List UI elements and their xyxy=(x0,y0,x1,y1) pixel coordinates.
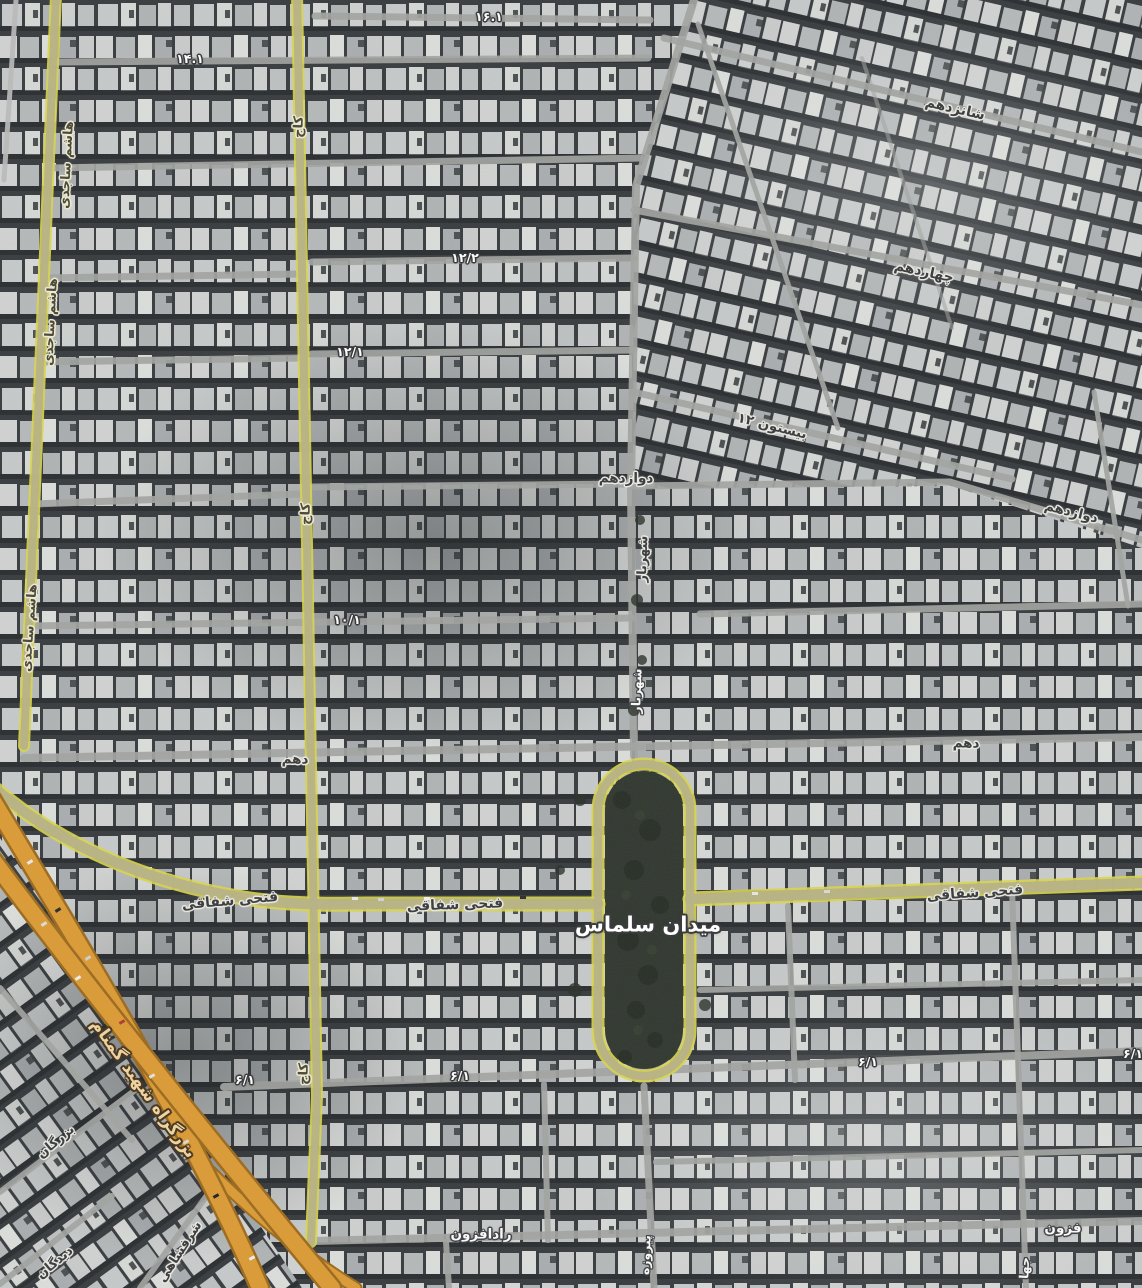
satellite-map[interactable]: هاشم ساجدیهاشم ساجدیهاشم ساجدیکاجکاجکاج۱… xyxy=(0,0,1142,1288)
satellite-map-canvas xyxy=(0,0,1142,1288)
photo-grain-overlay xyxy=(0,0,1142,1288)
